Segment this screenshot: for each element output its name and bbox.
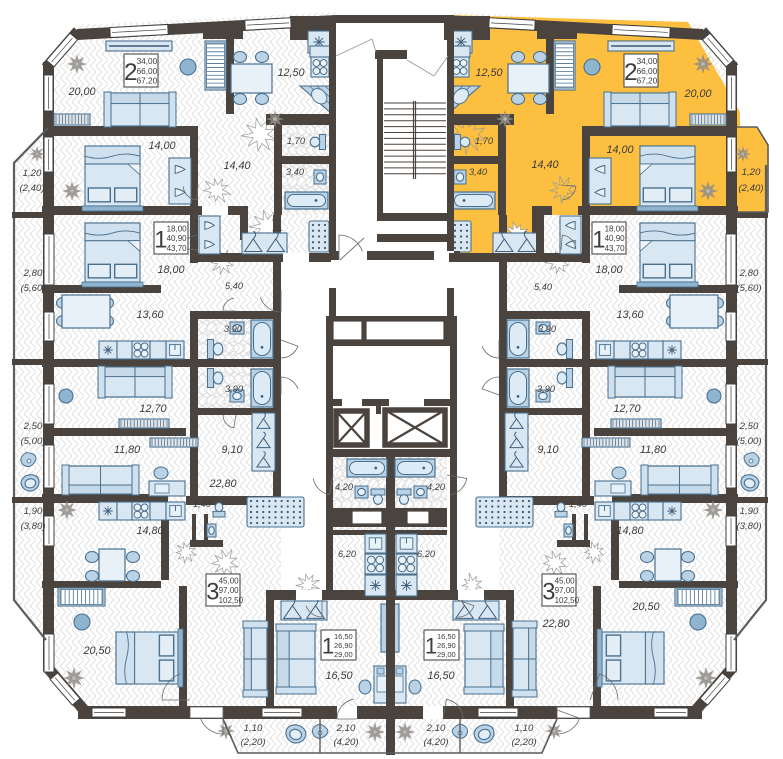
svg-text:97,00: 97,00: [555, 586, 576, 595]
svg-text:5,40: 5,40: [225, 281, 244, 291]
svg-text:12,50: 12,50: [277, 67, 304, 79]
svg-text:66,00: 66,00: [137, 67, 158, 76]
svg-text:(5,00): (5,00): [20, 436, 45, 447]
svg-text:18,00: 18,00: [167, 225, 188, 234]
svg-text:16,50: 16,50: [437, 632, 456, 641]
svg-text:(2,40): (2,40): [19, 183, 44, 194]
svg-text:3: 3: [206, 579, 219, 605]
svg-text:2,50: 2,50: [23, 421, 43, 432]
svg-text:2: 2: [124, 59, 138, 86]
svg-text:1,70: 1,70: [287, 136, 306, 146]
svg-text:45,00: 45,00: [555, 577, 576, 586]
svg-text:2,80: 2,80: [23, 268, 43, 279]
svg-text:12,50: 12,50: [475, 67, 502, 79]
svg-text:34,00: 34,00: [137, 57, 158, 66]
svg-text:(3,80): (3,80): [736, 521, 761, 532]
svg-text:1,40: 1,40: [569, 499, 588, 509]
svg-text:16,50: 16,50: [334, 632, 353, 641]
svg-text:(5,00): (5,00): [736, 436, 761, 447]
svg-text:45,00: 45,00: [219, 577, 240, 586]
svg-text:12,70: 12,70: [613, 403, 640, 415]
svg-text:(2,20): (2,20): [511, 737, 536, 748]
svg-text:3: 3: [542, 579, 555, 605]
svg-text:67,20: 67,20: [137, 77, 158, 86]
svg-text:16,50: 16,50: [325, 670, 352, 682]
svg-text:12,70: 12,70: [139, 403, 166, 415]
svg-text:97,00: 97,00: [219, 586, 240, 595]
svg-text:22,80: 22,80: [541, 618, 569, 630]
svg-text:6,20: 6,20: [338, 549, 357, 559]
svg-text:2,10: 2,10: [426, 723, 446, 734]
svg-text:1: 1: [154, 227, 167, 253]
svg-text:14,40: 14,40: [531, 159, 558, 171]
svg-text:2,80: 2,80: [739, 268, 759, 279]
svg-text:20,50: 20,50: [631, 601, 659, 613]
svg-text:1: 1: [592, 227, 605, 253]
svg-text:29,00: 29,00: [334, 650, 353, 659]
svg-text:9,10: 9,10: [537, 444, 558, 456]
svg-text:11,80: 11,80: [640, 444, 666, 456]
svg-text:3,90: 3,90: [224, 324, 243, 334]
svg-text:1,90: 1,90: [24, 506, 43, 517]
svg-text:5,40: 5,40: [534, 282, 553, 292]
svg-text:14,40: 14,40: [223, 160, 250, 172]
svg-text:102,50: 102,50: [555, 596, 580, 605]
svg-text:13,60: 13,60: [136, 309, 163, 321]
svg-text:1,10: 1,10: [244, 723, 263, 734]
svg-text:11,80: 11,80: [114, 444, 140, 456]
svg-text:102,50: 102,50: [219, 596, 244, 605]
svg-text:14,80: 14,80: [616, 525, 643, 537]
svg-text:20,00: 20,00: [67, 86, 95, 98]
svg-text:13,60: 13,60: [616, 309, 643, 321]
svg-text:4,20: 4,20: [335, 482, 354, 492]
svg-text:43,70: 43,70: [605, 244, 626, 253]
svg-text:18,00: 18,00: [157, 264, 184, 276]
svg-text:9,10: 9,10: [221, 444, 242, 456]
svg-text:34,00: 34,00: [637, 57, 658, 66]
svg-text:26,90: 26,90: [437, 641, 456, 650]
svg-text:3,90: 3,90: [537, 384, 556, 394]
svg-text:66,00: 66,00: [637, 67, 658, 76]
svg-text:(5,60): (5,60): [20, 283, 45, 294]
svg-text:1,90: 1,90: [740, 506, 759, 517]
svg-text:18,00: 18,00: [605, 225, 626, 234]
svg-text:4,20: 4,20: [427, 482, 446, 492]
svg-text:3,90: 3,90: [538, 324, 557, 334]
svg-text:1,70: 1,70: [475, 136, 494, 146]
svg-text:(5,60): (5,60): [736, 283, 761, 294]
svg-text:1: 1: [425, 634, 437, 659]
svg-text:3,90: 3,90: [225, 384, 244, 394]
svg-text:(2,20): (2,20): [240, 737, 265, 748]
svg-text:26,90: 26,90: [334, 641, 353, 650]
svg-text:43,70: 43,70: [167, 244, 188, 253]
svg-text:20,50: 20,50: [82, 645, 110, 657]
svg-text:(4,20): (4,20): [333, 737, 358, 748]
svg-text:(2,40): (2,40): [738, 183, 763, 194]
svg-text:1,10: 1,10: [515, 723, 534, 734]
svg-text:6,20: 6,20: [417, 549, 436, 559]
svg-text:16,50: 16,50: [427, 670, 454, 682]
svg-text:14,00: 14,00: [148, 140, 175, 152]
svg-text:1: 1: [322, 634, 334, 659]
svg-text:40,90: 40,90: [167, 234, 188, 243]
svg-text:1,20: 1,20: [23, 168, 42, 179]
svg-text:3,40: 3,40: [469, 167, 488, 177]
svg-text:1,40: 1,40: [193, 499, 212, 509]
svg-text:2,50: 2,50: [739, 421, 759, 432]
svg-text:40,90: 40,90: [605, 234, 626, 243]
svg-text:(3,80): (3,80): [20, 521, 45, 532]
svg-text:22,80: 22,80: [208, 478, 236, 490]
svg-text:2: 2: [624, 59, 638, 86]
svg-text:14,80: 14,80: [136, 525, 163, 537]
svg-text:(4,20): (4,20): [423, 737, 448, 748]
svg-text:14,00: 14,00: [606, 144, 633, 156]
svg-text:1,20: 1,20: [742, 167, 761, 178]
svg-text:29,00: 29,00: [437, 650, 456, 659]
svg-text:3,40: 3,40: [286, 167, 305, 177]
svg-text:67,20: 67,20: [637, 77, 658, 86]
svg-text:2,10: 2,10: [336, 723, 356, 734]
svg-text:18,00: 18,00: [595, 264, 622, 276]
svg-text:20,00: 20,00: [683, 88, 711, 100]
